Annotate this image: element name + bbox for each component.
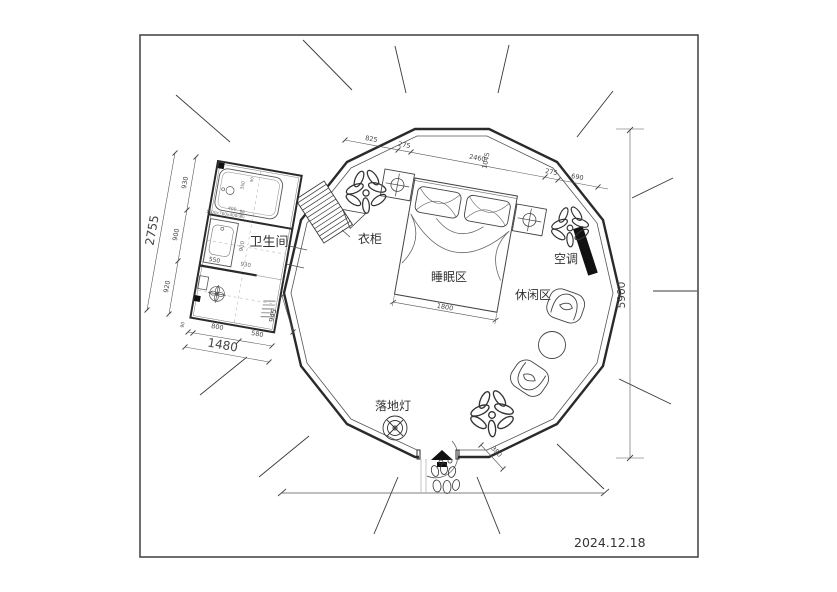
label-leisure-area: 休闲区: [515, 288, 551, 302]
label-sleeping-area: 睡眠区: [431, 270, 467, 284]
room-outline: [284, 129, 620, 457]
label-air-conditioner: 空调: [554, 252, 578, 266]
floorplan-drawing: 1800: [0, 0, 837, 592]
outer-wall: [284, 129, 620, 457]
label-bathroom: 卫生间: [249, 235, 288, 250]
floorplan-sheet: 1800: [0, 0, 837, 592]
dim-overall-5900: 5900: [616, 282, 628, 309]
dim-bath-90: 90: [180, 321, 187, 328]
label-floor-lamp: 落地灯: [375, 399, 411, 413]
date-stamp: 2024.12.18: [574, 535, 646, 550]
label-wardrobe: 衣柜: [358, 231, 382, 246]
column: [218, 162, 225, 169]
column: [194, 295, 201, 302]
